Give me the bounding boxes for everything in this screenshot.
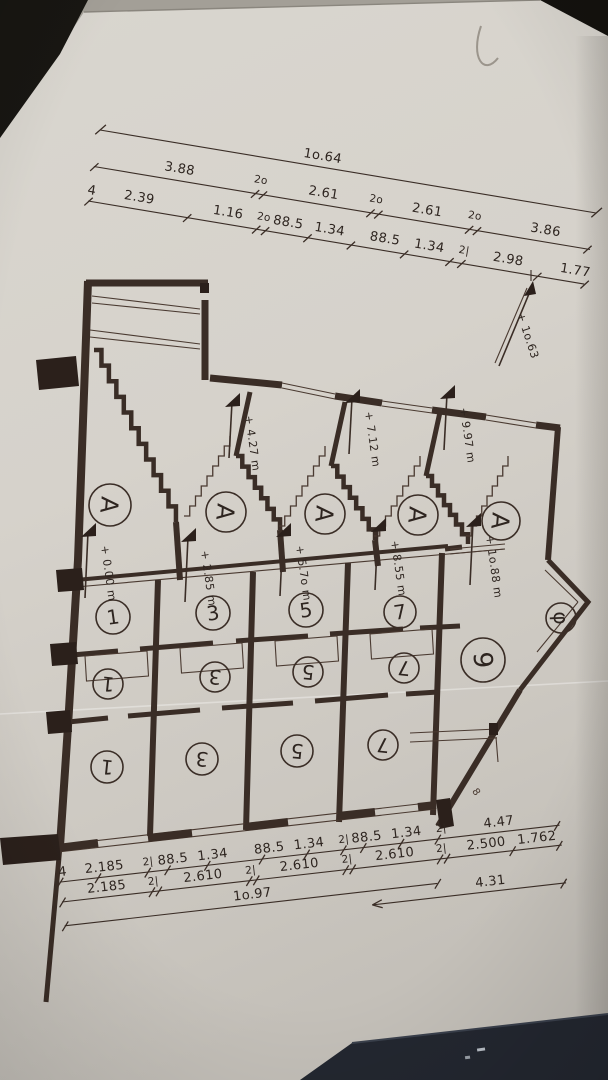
vignette — [0, 0, 608, 1080]
architectural-plan-photo: 1o.64 3.88 2o 2.61 2o 2.61 2o 3.86 4 2.3… — [0, 0, 608, 1080]
floor-plan-drawing: 1o.64 3.88 2o 2.61 2o 2.61 2o 3.86 4 2.3… — [0, 0, 608, 1080]
photo-foreground — [0, 0, 608, 1080]
